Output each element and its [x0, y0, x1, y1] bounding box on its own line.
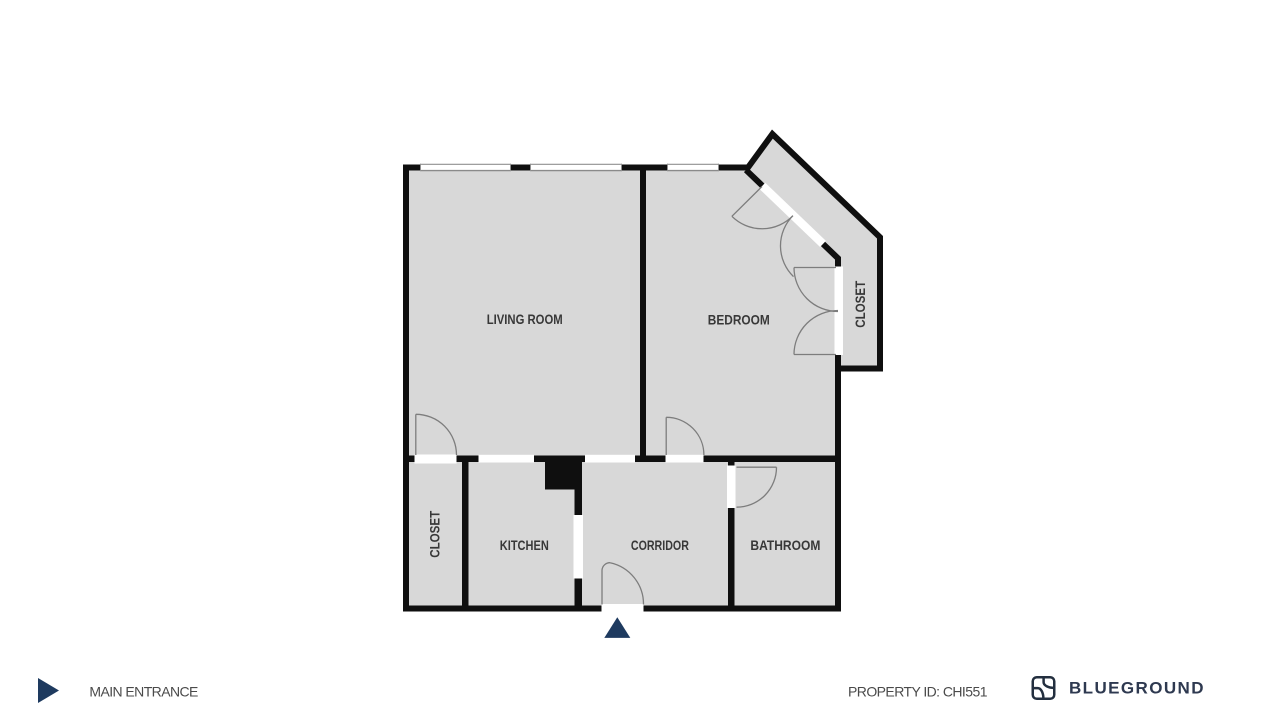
svg-text:CORRIDOR: CORRIDOR: [631, 537, 689, 553]
svg-text:PROPERTY ID: CHI551: PROPERTY ID: CHI551: [848, 684, 988, 700]
svg-text:KITCHEN: KITCHEN: [500, 537, 549, 553]
svg-text:BLUEGROUND: BLUEGROUND: [1069, 678, 1204, 697]
svg-text:CLOSET: CLOSET: [427, 510, 443, 557]
svg-text:BEDROOM: BEDROOM: [708, 312, 770, 328]
svg-text:CLOSET: CLOSET: [852, 280, 868, 327]
svg-text:MAIN ENTRANCE: MAIN ENTRANCE: [89, 683, 198, 699]
svg-text:BATHROOM: BATHROOM: [750, 537, 820, 553]
svg-text:LIVING ROOM: LIVING ROOM: [487, 311, 563, 327]
